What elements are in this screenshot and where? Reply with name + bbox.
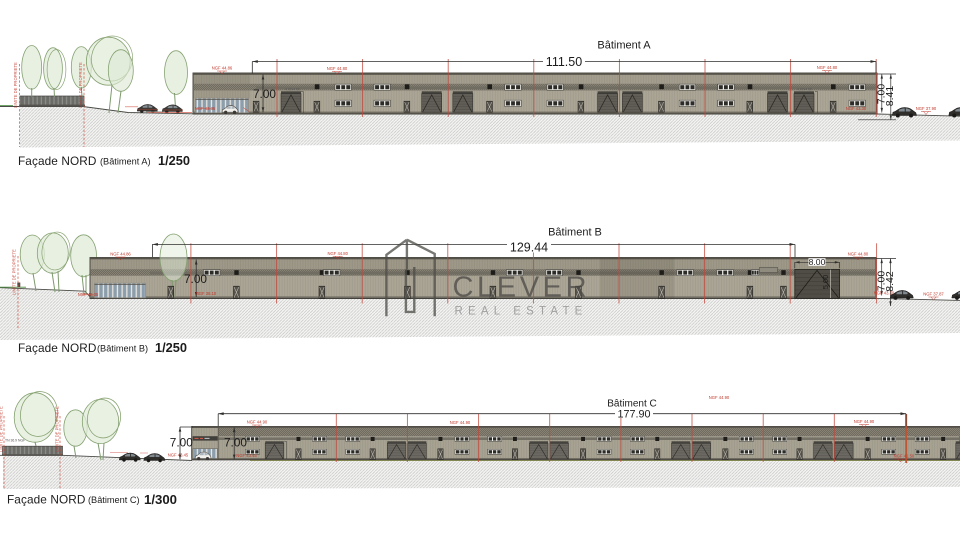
svg-text:1/250: 1/250 [155, 340, 187, 355]
svg-text:NGF 44.90: NGF 44.90 [450, 420, 471, 425]
svg-text:LIMITE DE PROPRIETE: LIMITE DE PROPRIETE [12, 249, 17, 295]
svg-text:(Bâtiment C): (Bâtiment C) [88, 495, 140, 505]
svg-text:NGF 38.10: NGF 38.10 [196, 291, 217, 296]
svg-text:NGF 44.86: NGF 44.86 [212, 66, 233, 71]
svg-text:TN 36.9 NGF: TN 36.9 NGF [5, 439, 25, 443]
svg-text:LIMITE DE PROPRIETE: LIMITE DE PROPRIETE [13, 62, 18, 108]
svg-text:129.44: 129.44 [510, 240, 548, 254]
svg-text:NGF 44.80: NGF 44.80 [848, 252, 869, 257]
svg-text:NGF 44.90: NGF 44.90 [709, 395, 730, 400]
svg-text:7.00: 7.00 [224, 436, 247, 450]
svg-text:Bâtiment A: Bâtiment A [597, 40, 651, 52]
svg-text:111.50: 111.50 [546, 55, 582, 69]
svg-text:Bâtiment C: Bâtiment C [607, 399, 656, 410]
svg-text:Façade NORD: Façade NORD [18, 154, 96, 168]
svg-text:4.00x4.50: 4.00x4.50 [797, 88, 812, 92]
svg-text:REAL ESTATE: REAL ESTATE [455, 306, 588, 318]
svg-text:NGF 44.86: NGF 44.86 [110, 252, 131, 257]
svg-text:NGF 44.90: NGF 44.90 [247, 420, 268, 425]
svg-text:NGF 44.90: NGF 44.90 [854, 419, 875, 424]
svg-text:NGF 44.80: NGF 44.80 [327, 66, 348, 71]
svg-text:LIMITE DE PROPRIETE: LIMITE DE PROPRIETE [55, 406, 60, 452]
svg-text:NGF 41.50: NGF 41.50 [894, 454, 915, 459]
svg-text:Façade NORD: Façade NORD [7, 493, 85, 507]
svg-text:(Bâtiment A): (Bâtiment A) [100, 157, 151, 167]
svg-text:8.42: 8.42 [884, 271, 896, 292]
svg-text:LIMITE DE PROPRIETE: LIMITE DE PROPRIETE [78, 62, 83, 108]
svg-text:NGF 37.87: NGF 37.87 [923, 292, 944, 297]
svg-text:CLEVER: CLEVER [453, 272, 591, 304]
svg-text:4.00x4.50: 4.00x4.50 [285, 88, 300, 92]
svg-text:LIMITE DE PROPRIETE: LIMITE DE PROPRIETE [0, 406, 4, 452]
svg-text:(Bâtiment B): (Bâtiment B) [97, 344, 148, 354]
svg-text:Façade NORD: Façade NORD [18, 341, 96, 355]
svg-text:NGF 44.80: NGF 44.80 [327, 251, 348, 256]
svg-text:NGF 43.45: NGF 43.45 [236, 453, 257, 458]
svg-text:NGF 43.45: NGF 43.45 [168, 452, 189, 457]
svg-text:7.00: 7.00 [253, 87, 276, 101]
svg-text:1/250: 1/250 [158, 153, 190, 168]
svg-text:NGF 44.80: NGF 44.80 [817, 65, 838, 70]
svg-text:8.00: 8.00 [809, 257, 826, 267]
svg-text:7.00: 7.00 [184, 272, 207, 286]
svg-text:1/300: 1/300 [144, 492, 177, 507]
svg-text:8.41: 8.41 [884, 86, 896, 107]
svg-text:177.90: 177.90 [617, 408, 650, 420]
svg-text:NGF 37.90: NGF 37.90 [916, 106, 937, 111]
svg-text:7.00: 7.00 [170, 436, 193, 450]
svg-text:5.00: 5.00 [821, 275, 830, 290]
svg-text:Bâtiment B: Bâtiment B [548, 227, 602, 239]
svg-text:NGF 43.30: NGF 43.30 [846, 106, 867, 111]
